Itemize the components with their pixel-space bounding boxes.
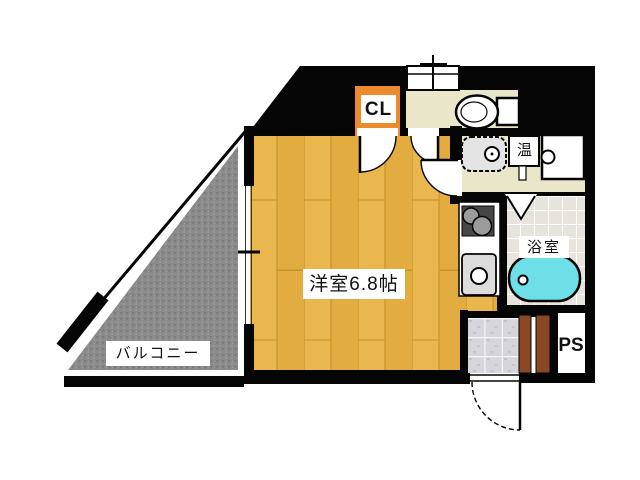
bathtub-drain bbox=[519, 276, 528, 285]
wall-entrance-left bbox=[460, 310, 468, 378]
floor-plan-page: 洋室6.8帖 バルコニー 浴室 CL PS 温 bbox=[0, 0, 640, 480]
pipe-space-label: PS bbox=[555, 333, 587, 357]
closet-label: CL bbox=[361, 95, 396, 123]
wall-room-left-upper bbox=[244, 126, 254, 186]
closet-doorway bbox=[357, 128, 398, 136]
wall-room-left-lower bbox=[244, 324, 254, 374]
toilet-doorway bbox=[408, 128, 439, 136]
wall-room-bottom bbox=[244, 370, 470, 384]
sink-faucet bbox=[471, 268, 487, 284]
entrance-tiles bbox=[468, 318, 520, 373]
balcony-label: バルコニー bbox=[106, 341, 210, 366]
water-heater-label: 温 bbox=[510, 140, 539, 161]
washing-machine-knob bbox=[542, 151, 555, 164]
bathroom-label: 浴室 bbox=[519, 236, 569, 258]
western-room-label: 洋室6.8帖 bbox=[303, 269, 405, 299]
shoe-cabinet-left bbox=[519, 315, 531, 373]
washbasin-drain-dot bbox=[491, 153, 494, 156]
stove-burner-large bbox=[473, 217, 492, 236]
shoe-cabinet-right bbox=[536, 315, 550, 373]
wall-room-washroom bbox=[450, 126, 462, 160]
wall-bottom-right bbox=[519, 373, 595, 383]
water-heater-pipe bbox=[519, 166, 526, 180]
toilet-tank bbox=[497, 98, 519, 125]
wall-balcony-bottom bbox=[64, 376, 244, 387]
toilet-bowl bbox=[456, 96, 498, 129]
entrance-step-edge bbox=[468, 311, 520, 318]
